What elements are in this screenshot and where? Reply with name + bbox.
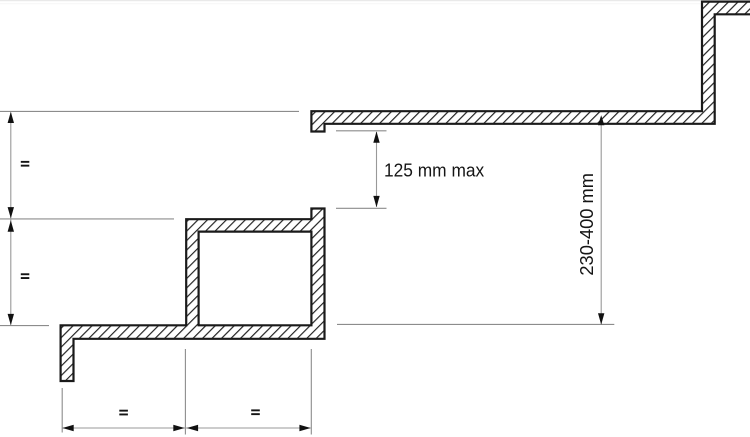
svg-text:230-400 mm: 230-400 mm [577, 173, 597, 276]
svg-text:125 mm max: 125 mm max [384, 160, 484, 180]
